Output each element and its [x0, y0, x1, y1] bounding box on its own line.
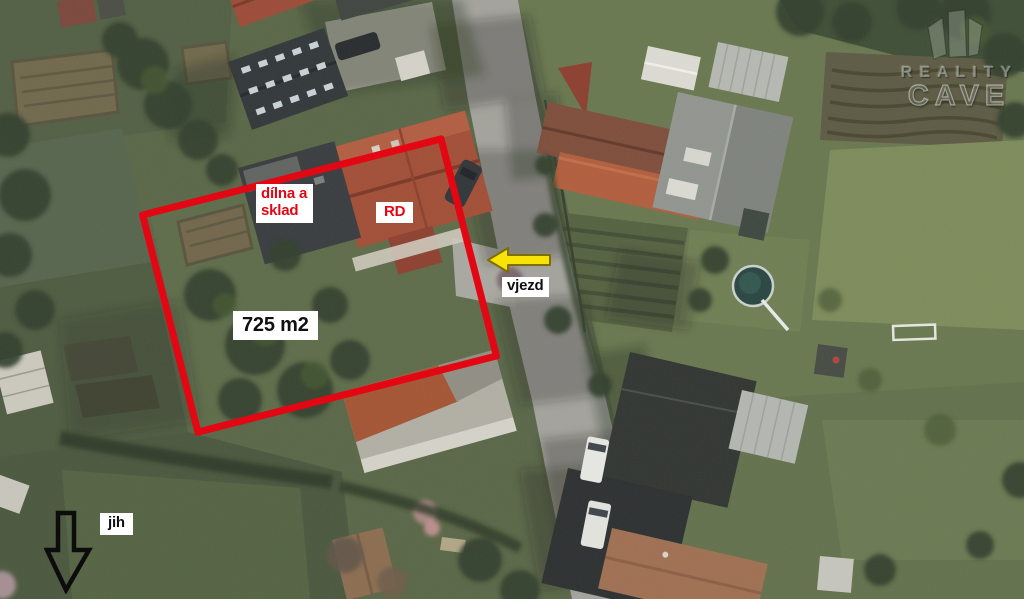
workshop-label-line1: dílna a — [261, 186, 307, 203]
south-arrow-icon — [44, 510, 94, 594]
photo-grain — [0, 0, 1024, 599]
workshop-label: dílna a sklad — [256, 184, 313, 223]
entrance-label: vjezd — [502, 277, 549, 297]
workshop-label-line2: sklad — [261, 203, 307, 220]
aerial-property-screenshot: dílna a sklad RD 725 m2 vjezd jih REALIT… — [0, 0, 1024, 599]
satellite-image — [0, 0, 1024, 599]
entrance-arrow-icon — [486, 246, 554, 274]
south-label: jih — [100, 513, 133, 535]
area-label: 725 m2 — [233, 311, 318, 340]
house-label: RD — [376, 202, 413, 223]
